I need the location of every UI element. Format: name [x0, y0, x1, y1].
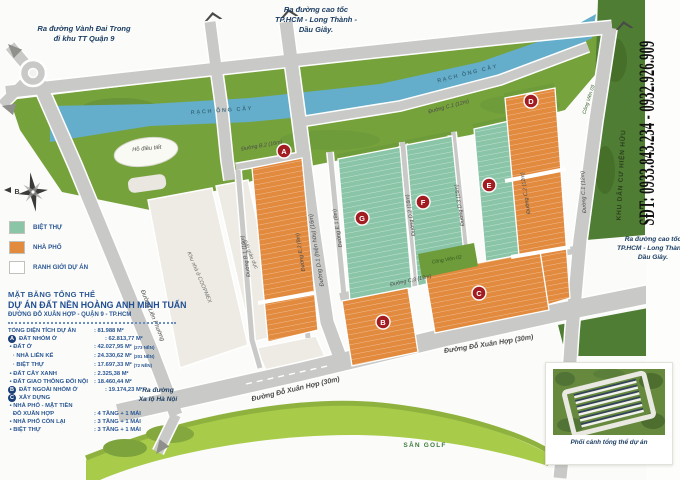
- row-label: • NHÀ PHỐ CÒN LẠI: [8, 418, 94, 426]
- divider: [8, 322, 176, 324]
- row-note: (72 NỀN): [134, 361, 152, 370]
- row-value: : 24.330,62 M²: [94, 352, 132, 360]
- row-value: : 18.460,44 M²: [94, 378, 132, 386]
- row-label: XÂY DỰNG: [19, 394, 105, 402]
- row-label: • ĐẤT CÂY XANH: [8, 370, 94, 378]
- project-info-panel: MẶT BẰNG TỔNG THỂ DỰ ÁN ĐẤT NỀN HOÀNG AN…: [8, 290, 186, 434]
- svg-text:E: E: [486, 181, 491, 190]
- svg-text:D: D: [528, 97, 534, 106]
- legend-item-villa: BIỆT THỰ: [9, 221, 91, 234]
- row-value: : 17.697,33 M²: [94, 361, 132, 369]
- exit-label-line: Ra đường cao tốc: [253, 5, 379, 15]
- row-badge: B: [8, 386, 16, 394]
- row-label: ĐỖ XUÂN HỢP: [8, 410, 94, 418]
- row-note: (201 NỀN): [134, 352, 155, 361]
- legend-item-townhouse: NHÀ PHỐ: [9, 241, 91, 254]
- row-value: : 62.813,77 M²: [105, 335, 143, 343]
- svg-text:G: G: [359, 214, 365, 223]
- row-badge: A: [8, 335, 16, 343]
- row-label: · BIỆT THỰ: [8, 361, 94, 369]
- row-label: • NHÀ PHỐ - MẶT TIỀN: [8, 402, 94, 410]
- info-row: • ĐẤT CÂY XANH: 2.325,38 M²: [8, 370, 186, 378]
- svg-text:F: F: [421, 198, 426, 207]
- legend-swatch-villa: [9, 221, 25, 234]
- exit-label-line: TP.HCM - Long Thành -: [253, 15, 379, 25]
- legend-swatch-townhouse: [9, 241, 25, 254]
- row-label: · NHÀ LIÊN KẾ: [8, 352, 94, 360]
- info-title-1: MẶT BẰNG TỔNG THỂ: [8, 290, 186, 299]
- marker-C: C: [472, 286, 486, 300]
- marker-B: B: [376, 315, 390, 329]
- info-subtitle: ĐƯỜNG ĐỖ XUÂN HỢP - QUẬN 9 - TP.HCM: [8, 312, 186, 318]
- exit-label-right: Ra đường cao tốc TP.HCM - Long Thành - D…: [598, 235, 680, 262]
- row-value: : 3 TẦNG + 1 MÁI: [94, 426, 141, 434]
- svg-text:B: B: [380, 318, 386, 327]
- legend: BIỆT THỰ NHÀ PHỐ RANH GIỚI DỰ ÁN: [9, 221, 91, 281]
- info-row: CXÂY DỰNG: [8, 394, 186, 402]
- row-value: : 42.027,95 M²: [94, 343, 132, 351]
- exit-label-line: đi khu TT Quận 9: [18, 34, 150, 44]
- row-label: • ĐẤT GIAO THÔNG ĐỐI NỘI: [8, 378, 94, 386]
- info-row: AĐẤT NHÓM Ở: 62.813,77 M²: [8, 335, 186, 343]
- info-row: TỔNG DIỆN TÍCH DỰ ÁN: 81.988 M²: [8, 327, 186, 335]
- info-row: ĐỖ XUÂN HỢP: 4 TẦNG + 1 MÁI: [8, 410, 186, 418]
- marker-A: A: [277, 144, 291, 158]
- info-row: • NHÀ PHỐ - MẶT TIỀN: [8, 402, 186, 410]
- info-row: BĐẤT NGOÀI NHÓM Ở: 19.174,23 M²: [8, 386, 186, 394]
- golf-label: SÂN GOLF: [403, 440, 446, 449]
- perspective-caption: Phối cảnh tổng thể dự án: [546, 439, 672, 446]
- info-row: • NHÀ PHỐ CÒN LẠI: 3 TẦNG + 1 MÁI: [8, 418, 186, 426]
- masterplan-poster: B RẠCH ÔNG CÂY RẠCH ÔNG CÂY Hồ điều tiết…: [0, 0, 680, 480]
- info-row: • ĐẤT Ở: 42.027,95 M²(273 NỀN): [8, 343, 186, 352]
- exit-label-line: TP.HCM - Long Thành -: [598, 244, 680, 253]
- exit-label-line: Ra đường Vành Đai Trong: [18, 24, 150, 34]
- row-value: : 19.174,23 M²: [105, 386, 143, 394]
- roundabout-island: [29, 69, 38, 78]
- info-title-2: DỰ ÁN ĐẤT NỀN HOÀNG ANH MINH TUẤN: [8, 300, 186, 310]
- row-value: : 4 TẦNG + 1 MÁI: [94, 410, 141, 418]
- legend-swatch-boundary: [9, 261, 25, 274]
- row-note: (273 NỀN): [134, 343, 155, 352]
- legend-label: RANH GIỚI DỰ ÁN: [33, 264, 91, 271]
- perspective-card: Phối cảnh tổng thể dự án: [545, 362, 673, 465]
- marker-D: D: [524, 94, 538, 108]
- row-value: : 2.325,38 M²: [94, 370, 128, 378]
- row-label: ĐẤT NHÓM Ở: [19, 335, 105, 343]
- info-row: • ĐẤT GIAO THÔNG ĐỐI NỘI: 18.460,44 M²: [8, 378, 186, 386]
- svg-text:A: A: [281, 147, 287, 156]
- exit-label-line: Dầu Giây.: [253, 25, 379, 35]
- svg-text:C: C: [476, 289, 482, 298]
- perspective-image: [553, 369, 665, 435]
- phone-number-strip: SĐT: 0933.843.234 - 0932.926.909: [635, 28, 680, 238]
- row-label: • BIỆT THỰ: [8, 426, 94, 434]
- row-badge: C: [8, 394, 16, 402]
- info-row: · NHÀ LIÊN KẾ: 24.330,62 M²(201 NỀN): [8, 352, 186, 361]
- legend-label: NHÀ PHỐ: [33, 244, 91, 251]
- row-label: TỔNG DIỆN TÍCH DỰ ÁN: [8, 327, 94, 335]
- exit-label-line: Dầu Giây.: [598, 253, 680, 262]
- row-value: : 81.988 M²: [94, 327, 124, 335]
- legend-item-boundary: RANH GIỚI DỰ ÁN: [9, 261, 91, 274]
- marker-F: F: [416, 195, 430, 209]
- tree-texture: [103, 439, 147, 457]
- phone-number: SĐT: 0933.843.234 - 0932.926.909: [635, 41, 660, 226]
- info-row: · BIỆT THỰ: 17.697,33 M²(72 NỀN): [8, 361, 186, 370]
- legend-label: BIỆT THỰ: [33, 224, 91, 231]
- marker-G: G: [355, 211, 369, 225]
- marker-E: E: [482, 178, 496, 192]
- compass-north-label: B: [14, 189, 19, 196]
- exit-label-top-left: Ra đường Vành Đai Trong đi khu TT Quận 9: [18, 24, 150, 44]
- block-G: [338, 147, 412, 301]
- row-value: : 3 TẦNG + 1 MÁI: [94, 418, 141, 426]
- row-label: ĐẤT NGOÀI NHÓM Ở: [19, 386, 105, 394]
- row-label: • ĐẤT Ở: [8, 343, 94, 351]
- info-row: • BIỆT THỰ: 3 TẦNG + 1 MÁI: [8, 426, 186, 434]
- exit-label-top-mid: Ra đường cao tốc TP.HCM - Long Thành - D…: [253, 5, 379, 35]
